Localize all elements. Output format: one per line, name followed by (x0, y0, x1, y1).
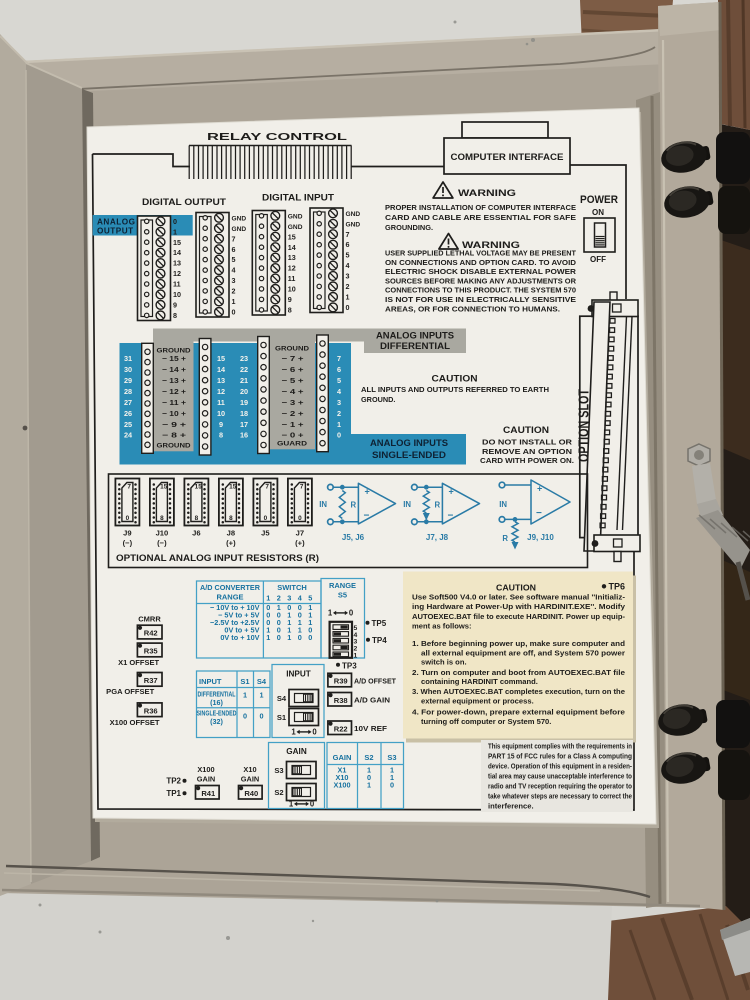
svg-text:2: 2 (232, 287, 236, 296)
svg-text:J10: J10 (156, 529, 169, 538)
svg-text:CAUTION: CAUTION (503, 425, 549, 435)
svg-text:1. Before beginning power up,: 1. Before beginning power up, make sure … (412, 639, 625, 648)
svg-text:1: 1 (287, 633, 291, 642)
svg-text:2: 2 (346, 282, 350, 291)
svg-text:26: 26 (124, 409, 132, 418)
svg-text:0: 0 (337, 431, 341, 440)
svg-text:GAIN: GAIN (241, 775, 259, 784)
svg-text:1: 1 (289, 800, 294, 809)
svg-text:R36: R36 (144, 706, 158, 715)
svg-text:0: 0 (232, 308, 236, 317)
svg-text:22: 22 (240, 365, 248, 374)
svg-text:10V REF: 10V REF (354, 724, 387, 733)
svg-text:IN: IN (499, 500, 507, 509)
svg-text:4: 4 (232, 266, 236, 275)
svg-text:0: 0 (243, 712, 247, 721)
svg-text:GUARD: GUARD (277, 440, 307, 447)
svg-text:GND: GND (288, 213, 303, 220)
svg-text:3: 3 (346, 272, 350, 281)
svg-text:12: 12 (217, 387, 225, 396)
svg-text:S2: S2 (274, 788, 283, 797)
svg-text:9: 9 (288, 295, 292, 304)
svg-text:− 4 +: − 4 + (282, 387, 304, 396)
svg-text:(16): (16) (210, 698, 223, 707)
svg-text:J5: J5 (261, 529, 270, 538)
svg-text:containing HARDINIT command.: containing HARDINIT command. (421, 677, 538, 686)
svg-text:16: 16 (240, 431, 248, 440)
svg-text:ANALOG INPUTS: ANALOG INPUTS (376, 331, 454, 341)
svg-text:X100: X100 (333, 781, 350, 790)
svg-text:GAIN: GAIN (197, 775, 215, 784)
svg-text:radio and TV reception requiri: radio and TV reception requiring the ope… (488, 782, 632, 791)
svg-text:1: 1 (346, 293, 350, 302)
svg-text:11: 11 (217, 398, 225, 407)
svg-text:8: 8 (229, 515, 233, 522)
svg-text:DIGITAL OUTPUT: DIGITAL OUTPUT (142, 196, 226, 207)
svg-text:R38: R38 (334, 696, 348, 705)
svg-text:7: 7 (346, 230, 350, 239)
svg-text:A/D CONVERTER: A/D CONVERTER (200, 583, 261, 592)
svg-text:This equipment complies with t: This equipment complies with the require… (488, 742, 632, 751)
svg-text:tial area may cause unacceptab: tial area may cause unacceptable interfe… (488, 772, 632, 781)
svg-text:10: 10 (173, 290, 181, 299)
svg-text:0: 0 (277, 633, 281, 642)
svg-text:28: 28 (124, 387, 132, 396)
svg-text:10: 10 (217, 409, 225, 418)
svg-text:INPUT: INPUT (199, 677, 222, 686)
svg-text:15: 15 (217, 354, 225, 363)
svg-text:0: 0 (308, 633, 312, 642)
svg-text:− 0 +: − 0 + (282, 431, 304, 440)
svg-text:S2: S2 (364, 753, 373, 762)
svg-text:− 13 +: − 13 + (162, 376, 186, 385)
svg-text:R41: R41 (201, 789, 216, 798)
svg-text:Use Soft500 V4.0 or later. See: Use Soft500 V4.0 or later. See software … (412, 593, 625, 602)
svg-text:R: R (435, 501, 441, 510)
svg-text:J7, J8: J7, J8 (426, 533, 449, 542)
svg-text:CONNECTIONS TO THIS PRODUCT. T: CONNECTIONS TO THIS PRODUCT. THE SYSTEM … (385, 286, 576, 295)
svg-text:ALL INPUTS AND OUTPUTS REFERRE: ALL INPUTS AND OUTPUTS REFERRED TO EARTH (361, 385, 549, 394)
svg-text:R40: R40 (244, 789, 258, 798)
svg-text:8: 8 (195, 515, 199, 522)
svg-text:18: 18 (240, 409, 248, 418)
svg-text:GND: GND (232, 226, 247, 233)
svg-text:AREAS, OR FOR CONNECTION TO HU: AREAS, OR FOR CONNECTION TO HUMANS. (385, 304, 560, 313)
svg-text:13: 13 (217, 376, 225, 385)
svg-text:USER SUPPLIED LETHAL VOLTAGE M: USER SUPPLIED LETHAL VOLTAGE MAY BE PRES… (385, 249, 576, 258)
svg-text:PGA OFFSET: PGA OFFSET (106, 687, 154, 696)
svg-text:SINGLE-ENDED: SINGLE-ENDED (372, 450, 446, 460)
svg-text:−: − (448, 511, 454, 522)
svg-text:GROUND: GROUND (157, 442, 191, 449)
svg-text:(+): (+) (226, 539, 236, 548)
svg-text:0: 0 (259, 712, 263, 721)
svg-text:J9: J9 (123, 529, 131, 538)
svg-text:− 7 +: − 7 + (282, 354, 304, 363)
svg-text:9: 9 (173, 301, 177, 310)
svg-text:REMOVE AN OPTION: REMOVE AN OPTION (482, 447, 572, 456)
svg-text:RELAY CONTROL: RELAY CONTROL (207, 131, 348, 143)
svg-text:6: 6 (346, 240, 350, 249)
svg-text:(−): (−) (123, 539, 133, 548)
svg-text:GND: GND (232, 215, 247, 222)
svg-text:1: 1 (328, 609, 333, 618)
svg-text:1: 1 (266, 594, 270, 603)
svg-text:8: 8 (288, 306, 292, 315)
svg-text:5: 5 (308, 594, 312, 603)
svg-text:5: 5 (232, 255, 236, 264)
svg-text:device. Operation of this equi: device. Operation of this equipment in a… (488, 762, 632, 771)
svg-text:IN: IN (403, 500, 411, 509)
svg-text:IS NOT FOR USE IN ELECTRICALLY: IS NOT FOR USE IN ELECTRICALLY SENSITIVE (385, 295, 576, 304)
svg-text:ON CONNECTIONS AND OPTION CARD: ON CONNECTIONS AND OPTION CARD. TO AVOID (385, 258, 577, 267)
svg-text:R35: R35 (144, 647, 159, 656)
svg-text:take whatever steps are necess: take whatever steps are necessary to cor… (488, 792, 632, 801)
svg-text:−: − (536, 508, 542, 519)
svg-text:interference.: interference. (488, 802, 534, 811)
svg-text:2: 2 (277, 594, 281, 603)
svg-text:1: 1 (173, 227, 177, 236)
svg-text:X100: X100 (197, 765, 214, 774)
svg-text:0: 0 (312, 728, 317, 737)
svg-text:14: 14 (173, 248, 181, 257)
svg-text:13: 13 (173, 259, 181, 268)
svg-text:ELECTRIC SHOCK DISABLE EXTERNA: ELECTRIC SHOCK DISABLE EXTERNAL POWER (385, 267, 577, 276)
svg-text:DIGITAL INPUT: DIGITAL INPUT (262, 192, 334, 203)
svg-text:RANGE: RANGE (216, 593, 243, 602)
svg-text:+: + (365, 487, 370, 497)
svg-text:TP3: TP3 (342, 661, 357, 670)
svg-text:POWER: POWER (580, 194, 618, 206)
svg-text:24: 24 (124, 431, 133, 440)
svg-text:7: 7 (300, 484, 304, 491)
svg-text:15: 15 (288, 232, 296, 241)
svg-text:J8: J8 (227, 529, 235, 538)
svg-text:R22: R22 (334, 724, 348, 733)
svg-text:GROUND: GROUND (275, 345, 309, 352)
svg-text:15: 15 (195, 484, 203, 491)
svg-text:− 6 +: − 6 + (282, 365, 304, 374)
svg-text:29: 29 (124, 376, 132, 385)
svg-text:ANALOG: ANALOG (97, 218, 135, 227)
svg-text:− 15 +: − 15 + (162, 354, 186, 363)
svg-text:0: 0 (126, 515, 130, 522)
svg-text:25: 25 (124, 420, 132, 429)
svg-text:CARD WITH POWER ON.: CARD WITH POWER ON. (480, 456, 574, 465)
svg-text:−: − (364, 511, 370, 522)
svg-text:− 14 +: − 14 + (162, 365, 186, 374)
svg-text:7: 7 (127, 484, 131, 491)
svg-text:0: 0 (264, 515, 268, 522)
svg-text:PART 15 of FCC rules for a Cla: PART 15 of FCC rules for a Class A compu… (488, 752, 632, 761)
svg-text:1: 1 (259, 691, 263, 700)
svg-text:S5: S5 (338, 591, 347, 600)
svg-text:SOURCES BEFORE MAKING ANY ADJU: SOURCES BEFORE MAKING ANY ADJUSTMENTS OR (385, 276, 577, 285)
svg-text:− 10 +: − 10 + (162, 409, 186, 418)
svg-text:0: 0 (346, 303, 350, 312)
svg-text:23: 23 (240, 354, 248, 363)
svg-text:all external equipment are off: all external equipment are off, and Syst… (421, 649, 625, 658)
svg-text:14: 14 (288, 243, 296, 252)
svg-text:S3: S3 (387, 753, 396, 762)
svg-text:R37: R37 (144, 676, 158, 685)
svg-text:S1: S1 (277, 713, 287, 722)
svg-text:− 9 +: − 9 + (162, 420, 186, 429)
svg-text:− 12 +: − 12 + (162, 387, 186, 396)
svg-text:J7: J7 (296, 529, 304, 538)
svg-text:turning off computer or System: turning off computer or System 570. (421, 717, 551, 726)
svg-text:S1: S1 (240, 677, 249, 686)
svg-text:TP5: TP5 (372, 619, 387, 628)
svg-text:CMRR: CMRR (138, 615, 161, 624)
svg-text:− 5 +: − 5 + (282, 376, 304, 385)
svg-text:X100 OFFSET: X100 OFFSET (110, 718, 160, 727)
svg-text:R42: R42 (144, 629, 158, 638)
svg-text:R: R (351, 501, 357, 510)
svg-text:− 1 +: − 1 + (282, 420, 304, 429)
svg-text:7: 7 (337, 354, 341, 363)
svg-text:0V to + 10V: 0V to + 10V (220, 633, 259, 642)
svg-text:+: + (449, 487, 454, 497)
svg-text:TP6: TP6 (609, 582, 626, 592)
svg-text:0: 0 (298, 515, 302, 522)
svg-text:CARD AND CABLE ARE ESSENTIAL F: CARD AND CABLE ARE ESSENTIAL FOR SAFE (385, 213, 576, 222)
svg-text:4. For power-down, prepare ext: 4. For power-down, prepare external equi… (412, 708, 625, 717)
svg-text:RANGE: RANGE (329, 581, 356, 590)
svg-text:ANALOG INPUTS: ANALOG INPUTS (370, 438, 448, 448)
svg-text:ON: ON (592, 208, 604, 217)
svg-text:14: 14 (217, 365, 226, 374)
svg-text:OPTIONAL ANALOG INPUT RESISTOR: OPTIONAL ANALOG INPUT RESISTORS (R) (116, 553, 319, 563)
svg-text:0: 0 (298, 633, 302, 642)
svg-text:GND: GND (288, 224, 303, 231)
svg-text:15: 15 (160, 484, 168, 491)
svg-text:6: 6 (337, 365, 341, 374)
svg-text:− 2 +: − 2 + (282, 409, 304, 418)
svg-text:19: 19 (240, 398, 248, 407)
svg-text:DIFFERENTIAL: DIFFERENTIAL (380, 341, 451, 351)
svg-text:1: 1 (232, 297, 236, 306)
svg-text:21: 21 (240, 376, 248, 385)
svg-text:J9, J10: J9, J10 (527, 533, 554, 542)
svg-text:X1 OFFSET: X1 OFFSET (118, 658, 159, 667)
svg-text:J6: J6 (192, 529, 200, 538)
svg-text:GND: GND (346, 211, 361, 218)
svg-text:20: 20 (240, 387, 248, 396)
svg-text:switch is on.: switch is on. (421, 657, 467, 666)
svg-text:8: 8 (173, 311, 177, 320)
svg-text:IN: IN (319, 500, 327, 509)
svg-text:11: 11 (288, 274, 296, 283)
svg-text:1: 1 (266, 633, 270, 642)
svg-text:S4: S4 (257, 677, 267, 686)
svg-text:3: 3 (287, 594, 291, 603)
svg-text:GROUND.: GROUND. (361, 395, 395, 404)
svg-text:0: 0 (310, 800, 315, 809)
svg-text:3. When AUTOEXEC.BAT completes: 3. When AUTOEXEC.BAT completes execution… (412, 687, 625, 696)
svg-text:1: 1 (354, 652, 358, 659)
svg-text:ing Hardware at Power-Up with: ing Hardware at Power-Up with HARDINIT.E… (412, 602, 626, 611)
svg-text:1: 1 (243, 691, 247, 700)
svg-text:11: 11 (173, 280, 181, 289)
svg-text:− 3 +: − 3 + (282, 398, 304, 407)
svg-text:R: R (502, 534, 508, 543)
svg-text:12: 12 (173, 269, 181, 278)
svg-text:15: 15 (229, 484, 237, 491)
svg-text:8: 8 (219, 431, 223, 440)
svg-text:0: 0 (349, 609, 354, 618)
svg-text:J5, J6: J5, J6 (342, 533, 365, 542)
svg-text:GAIN: GAIN (286, 747, 307, 756)
svg-text:WARNING: WARNING (458, 188, 516, 198)
svg-text:0: 0 (173, 217, 177, 226)
svg-text:5: 5 (337, 376, 341, 385)
svg-text:2: 2 (337, 409, 341, 418)
svg-text:− 8 +: − 8 + (162, 431, 186, 440)
svg-text:6: 6 (232, 245, 236, 254)
svg-text:AUTOEXEC.BAT file to execute H: AUTOEXEC.BAT file to execute HARDINIT. P… (412, 612, 625, 621)
svg-text:external equipment or process.: external equipment or process. (421, 696, 534, 705)
svg-text:(−): (−) (157, 539, 167, 548)
svg-text:PROPER INSTALLATION OF COMPUTE: PROPER INSTALLATION OF COMPUTER INTERFAC… (385, 203, 576, 212)
svg-text:INPUT: INPUT (286, 670, 311, 679)
svg-text:TP2: TP2 (166, 777, 181, 786)
svg-text:+: + (537, 484, 542, 494)
svg-text:1: 1 (367, 781, 371, 790)
svg-text:− 11 +: − 11 + (162, 398, 186, 407)
svg-text:5: 5 (346, 251, 350, 260)
svg-text:OFF: OFF (590, 255, 606, 264)
svg-text:GND: GND (346, 221, 361, 228)
svg-text:SWITCH: SWITCH (277, 583, 307, 592)
svg-text:31: 31 (124, 354, 132, 363)
svg-text:27: 27 (124, 398, 132, 407)
svg-text:7: 7 (265, 484, 269, 491)
svg-text:4: 4 (346, 261, 350, 270)
svg-text:DO NOT INSTALL OR: DO NOT INSTALL OR (482, 438, 573, 447)
svg-text:30: 30 (124, 365, 132, 374)
svg-text:2. Turn on computer and boot f: 2. Turn on computer and boot from AUTOEX… (412, 668, 625, 677)
svg-text:CAUTION: CAUTION (432, 374, 478, 384)
svg-text:3: 3 (337, 398, 341, 407)
svg-text:12: 12 (288, 264, 296, 273)
svg-text:TP4: TP4 (372, 636, 387, 645)
svg-text:15: 15 (173, 238, 181, 247)
svg-text:8: 8 (160, 515, 164, 522)
svg-text:R39: R39 (334, 677, 348, 686)
svg-text:17: 17 (240, 420, 248, 429)
svg-text:0: 0 (390, 781, 394, 790)
svg-text:(+): (+) (295, 539, 305, 548)
svg-text:COMPUTER INTERFACE: COMPUTER INTERFACE (451, 152, 564, 162)
svg-text:1: 1 (291, 728, 296, 737)
svg-text:OUTPUT: OUTPUT (97, 227, 134, 236)
svg-text:X10: X10 (243, 765, 256, 774)
svg-text:ment as follows:: ment as follows: (412, 622, 472, 631)
svg-text:1: 1 (337, 420, 341, 429)
svg-text:CAUTION: CAUTION (496, 584, 536, 593)
svg-text:3: 3 (232, 276, 236, 285)
svg-text:10: 10 (288, 285, 296, 294)
svg-text:9: 9 (219, 420, 223, 429)
svg-text:A/D OFFSET: A/D OFFSET (354, 677, 396, 686)
svg-text:(32): (32) (210, 717, 223, 726)
svg-text:GROUNDING.: GROUNDING. (385, 223, 433, 232)
svg-text:13: 13 (288, 253, 296, 262)
svg-text:S3: S3 (274, 766, 283, 775)
svg-text:S4: S4 (277, 694, 287, 703)
svg-text:A/D GAIN: A/D GAIN (354, 696, 390, 705)
svg-text:7: 7 (232, 234, 236, 243)
svg-text:TP1: TP1 (166, 789, 181, 798)
svg-text:GAIN: GAIN (333, 753, 352, 762)
